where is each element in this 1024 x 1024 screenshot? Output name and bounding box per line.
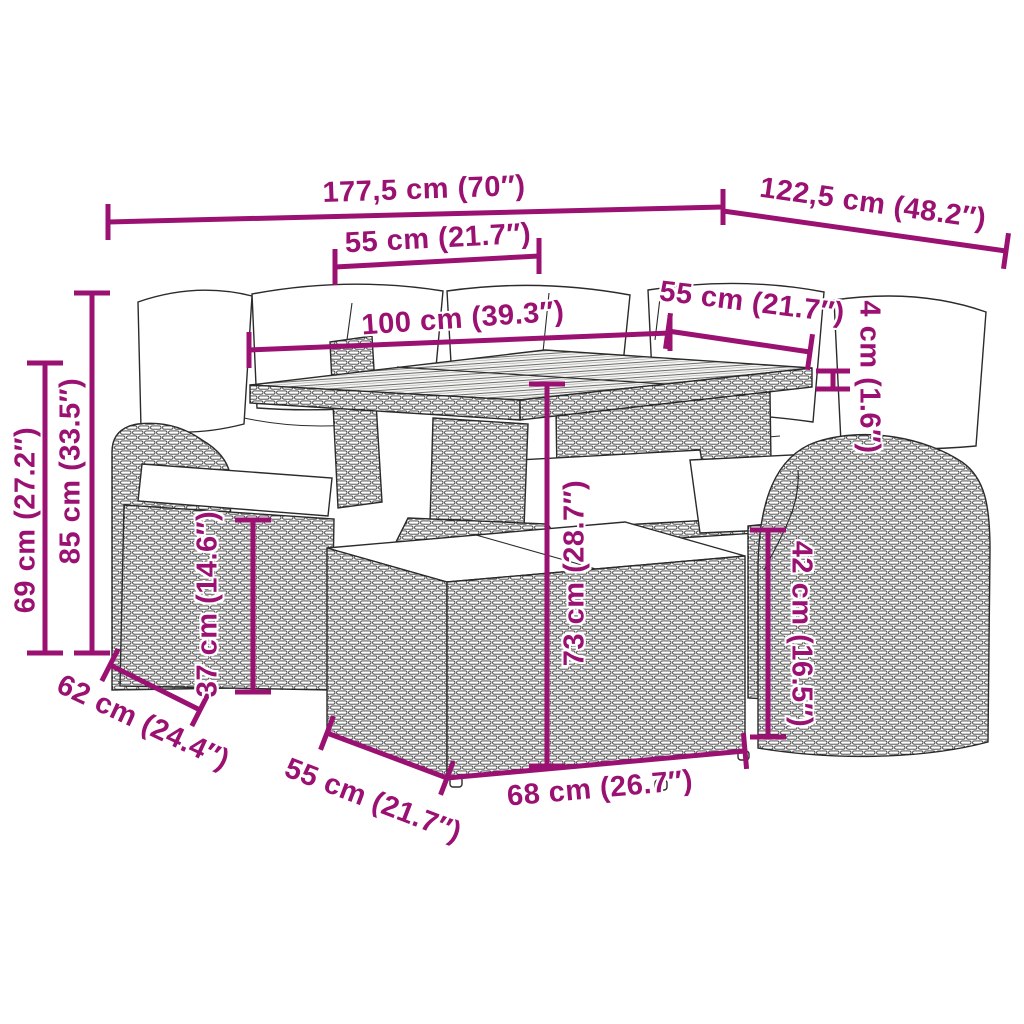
left-seat-base: [120, 505, 334, 690]
dimension-label-armrest-height: 69 cm (27.2″): [10, 427, 43, 613]
dimension-label-table-height: 73 cm (28.7″): [559, 480, 592, 666]
dimension-label-tabletop-thickness: 4 cm (1.6″): [853, 300, 886, 453]
pillow: [138, 290, 252, 432]
dimension-label-seat-height-right: 42 cm (16.5″): [785, 541, 818, 727]
table-pedestal: [430, 418, 528, 528]
dimension-label-total-width: 177,5 cm (70″): [322, 170, 526, 210]
furniture-line-art: [0, 0, 1024, 1024]
ottoman-left-face: [327, 548, 447, 777]
corner-post: [330, 336, 382, 508]
dimension-label-back-height: 85 cm (33.5″): [55, 378, 88, 564]
ottoman-right-face: [447, 556, 745, 777]
dimension-label-seat-height-left: 37 cm (14.6″): [192, 511, 225, 697]
dimension-diagram: 177,5 cm (70″) 122,5 cm (48.2″) 55 cm (2…: [0, 0, 1024, 1024]
ottoman: [327, 522, 749, 790]
